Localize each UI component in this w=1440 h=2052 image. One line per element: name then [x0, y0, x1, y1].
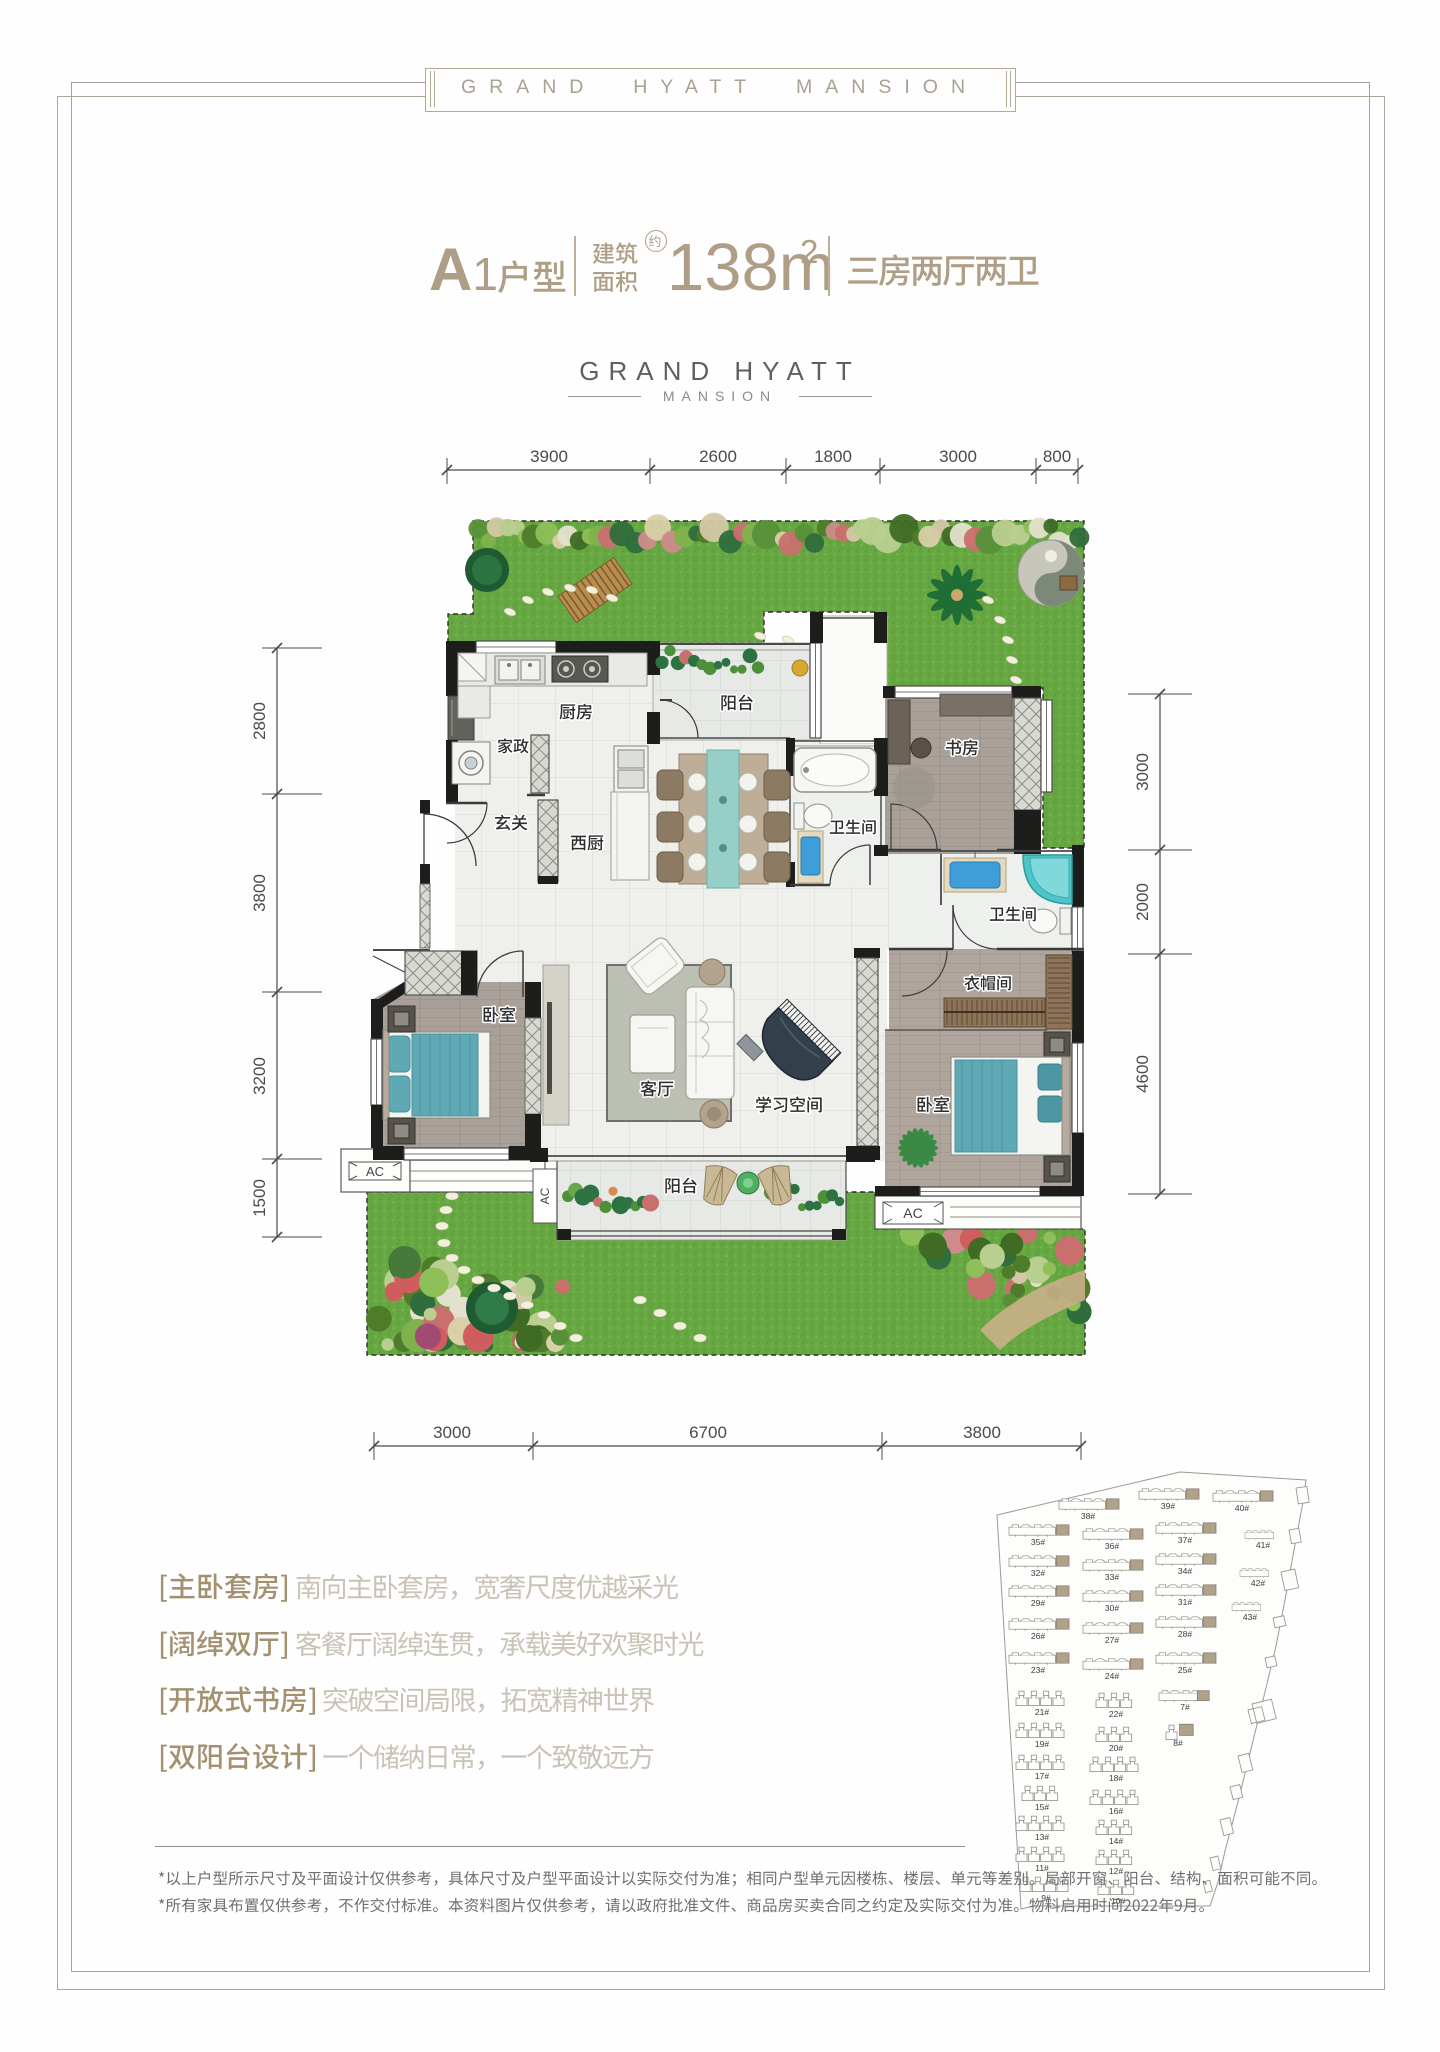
svg-text:2000: 2000 [1133, 883, 1152, 921]
svg-text:3900: 3900 [530, 447, 568, 466]
svg-text:1500: 1500 [250, 1179, 269, 1217]
svg-text:6700: 6700 [689, 1423, 727, 1442]
svg-text:2600: 2600 [699, 447, 737, 466]
svg-text:3000: 3000 [939, 447, 977, 466]
svg-text:1800: 1800 [814, 447, 852, 466]
svg-text:3800: 3800 [250, 874, 269, 912]
svg-text:AC: AC [366, 1164, 384, 1179]
svg-text:AC: AC [903, 1205, 922, 1221]
svg-text:3000: 3000 [433, 1423, 471, 1442]
svg-text:3000: 3000 [1133, 753, 1152, 791]
svg-text:2800: 2800 [250, 702, 269, 740]
svg-text:4600: 4600 [1133, 1055, 1152, 1093]
svg-text:3800: 3800 [963, 1423, 1001, 1442]
svg-text:800: 800 [1043, 447, 1071, 466]
svg-text:AC: AC [538, 1187, 552, 1204]
svg-text:3200: 3200 [250, 1057, 269, 1095]
